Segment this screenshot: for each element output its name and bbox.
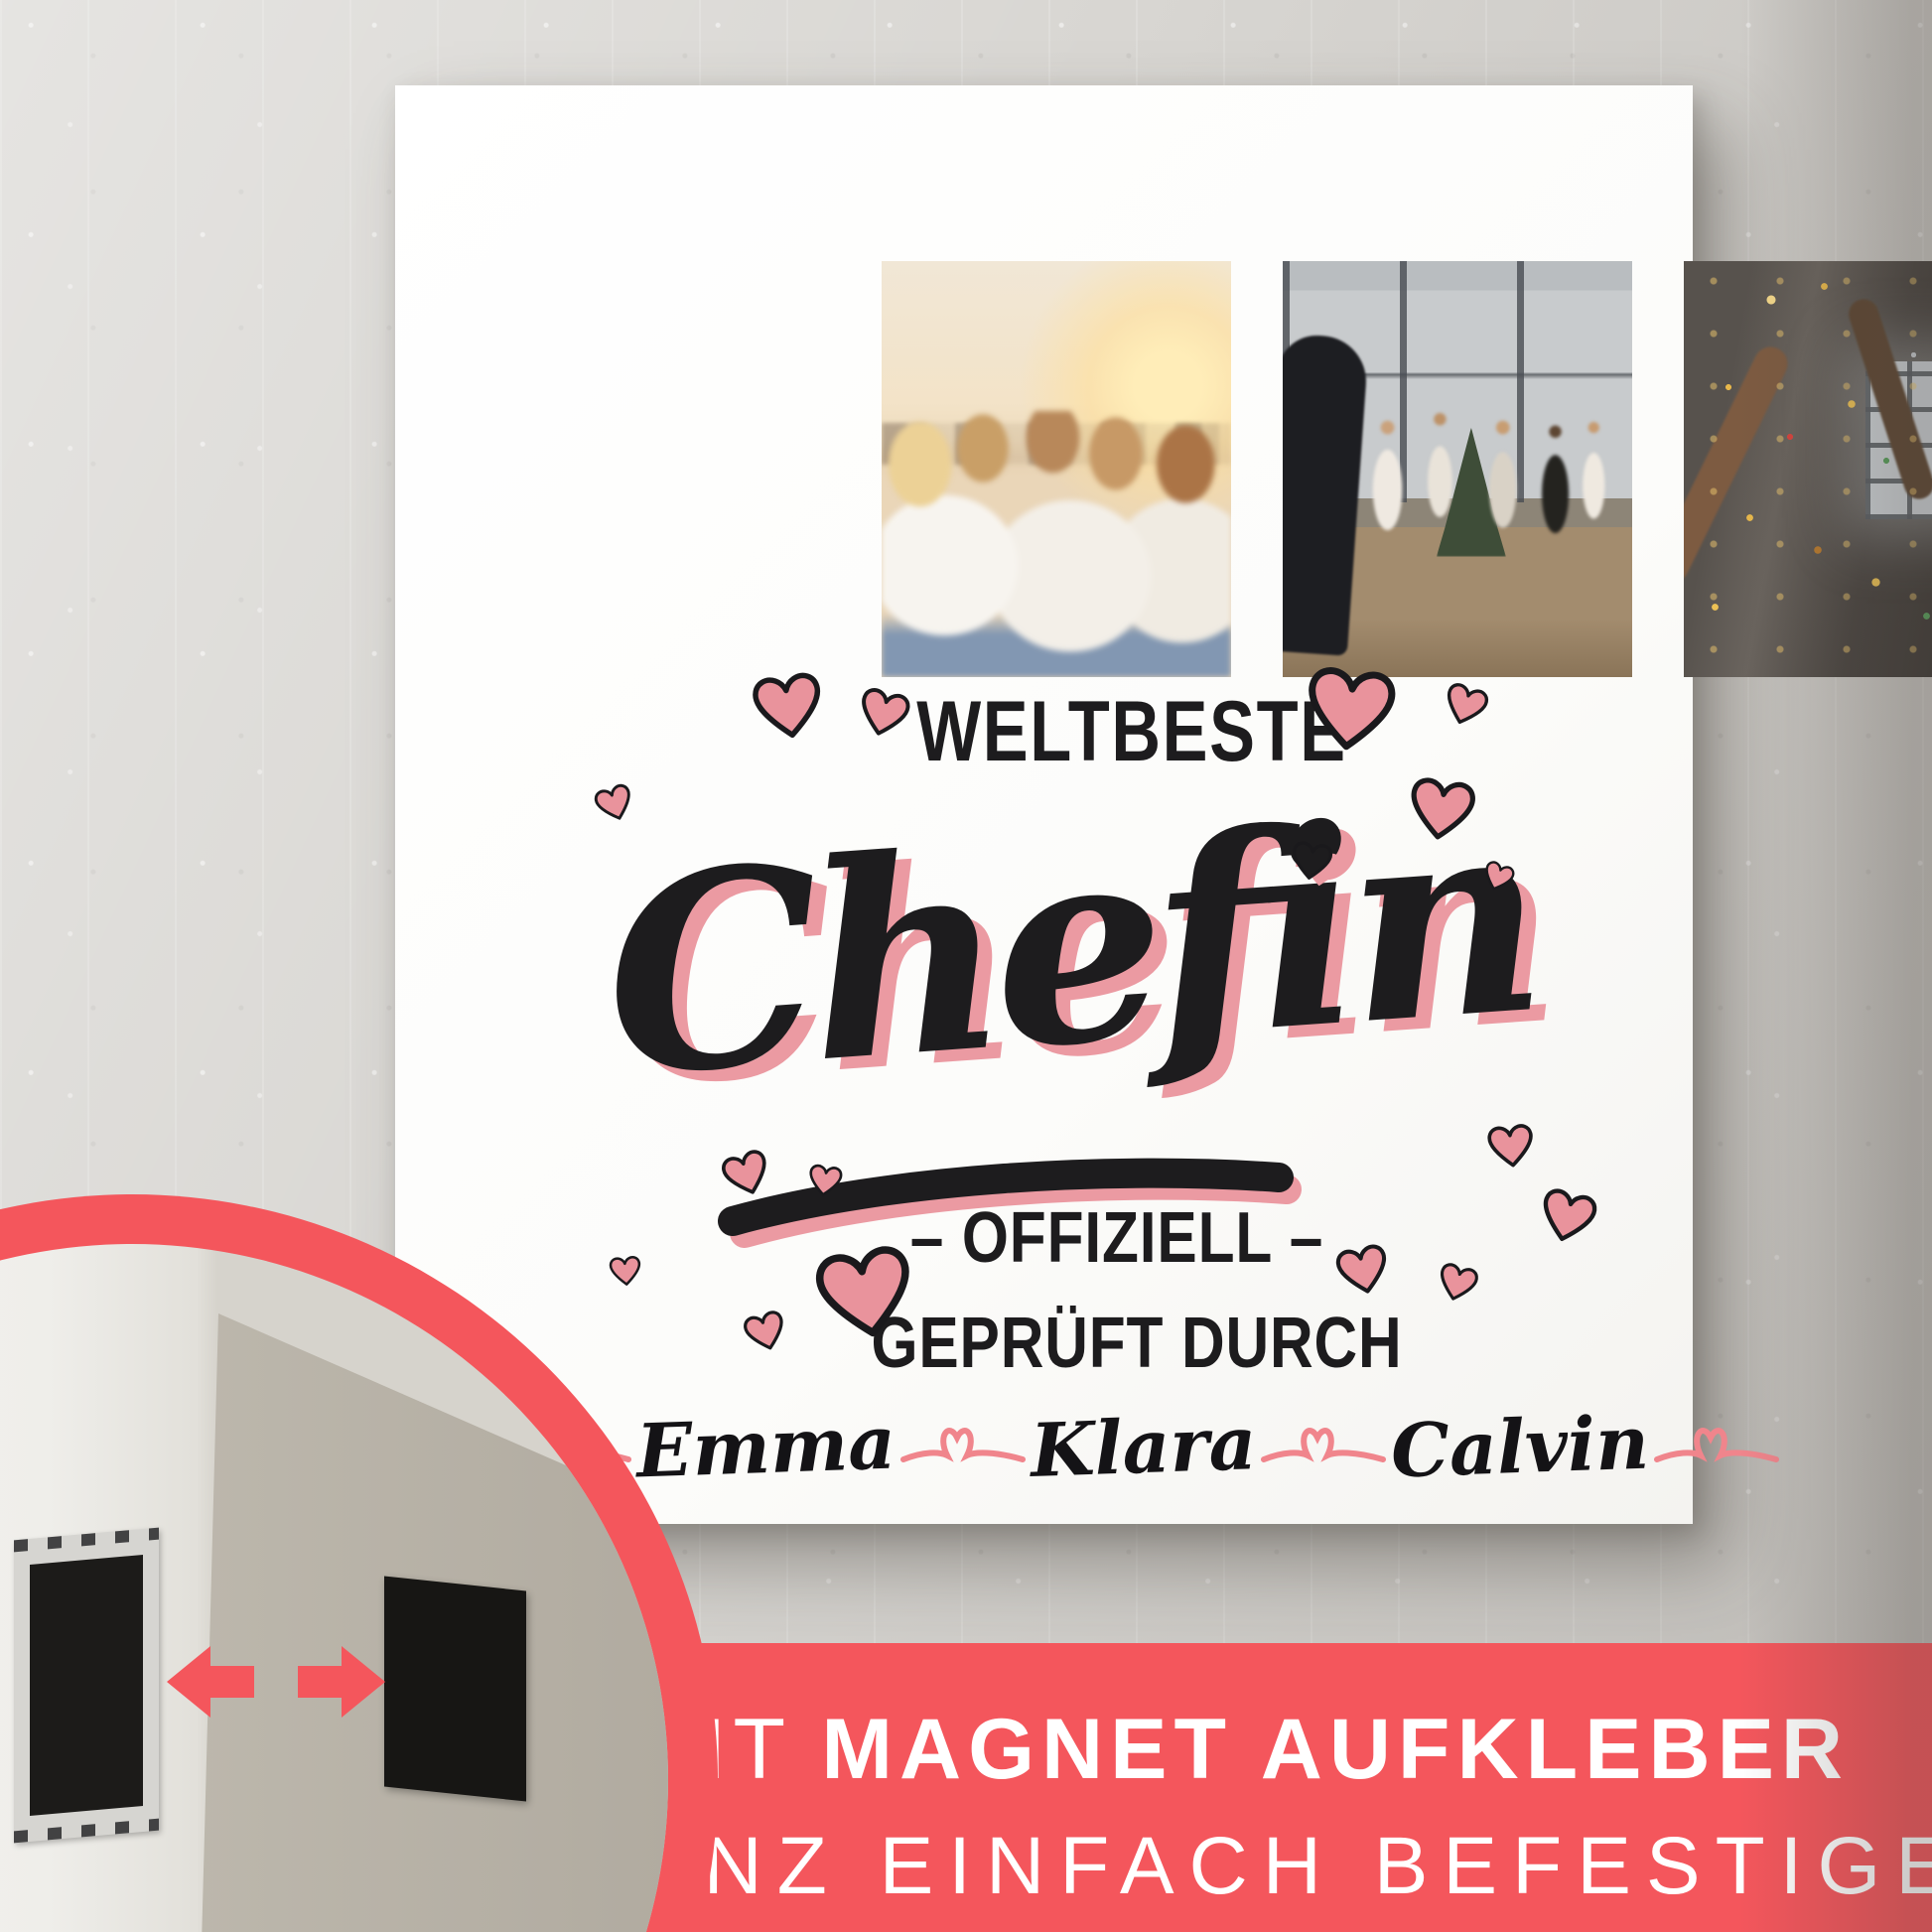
- names-row: Emma Klara Calvin: [602, 1388, 1684, 1507]
- magnet-black-core: [30, 1555, 143, 1816]
- heart-icon: [1482, 1117, 1539, 1173]
- raised-arm-shape: [1684, 342, 1793, 589]
- arrow-right-icon: [298, 1640, 385, 1724]
- heart-swash-icon: [899, 1416, 1027, 1479]
- figure-silhouette: [1283, 334, 1369, 656]
- subline-offiziell: – OFFIZIELL –: [859, 1197, 1376, 1279]
- banner-line1-bold: MAGNET AUFKLEBER: [821, 1702, 1850, 1797]
- title-chefin-script: Chefin: [597, 774, 1528, 1121]
- christmas-tree-shape: [1437, 428, 1506, 557]
- product-photo: WELTBESTE Chefin – OFFIZIELL – GEPRÜFT D…: [0, 0, 1932, 1932]
- raised-arm-shape: [1845, 295, 1932, 502]
- banner-line-2: GANZ EINFACH BEFESTIGEN: [556, 1820, 1926, 1913]
- magnet-sticker-with-frame: [14, 1528, 159, 1844]
- photo-friends-sunset-hug: [882, 261, 1231, 677]
- photo-confetti-celebration: [1684, 261, 1932, 677]
- name-3: Calvin: [1390, 1400, 1651, 1494]
- heart-swash-icon: [1260, 1416, 1387, 1479]
- heart-icon: [1329, 1236, 1398, 1305]
- heart-icon: [606, 1251, 644, 1290]
- magnet-sticker: [384, 1576, 526, 1801]
- photo-office-party: [1283, 261, 1632, 677]
- heart-swash-icon: [1653, 1416, 1780, 1479]
- banner-line-1: MIT MAGNET AUFKLEBER: [556, 1701, 1918, 1799]
- headline-weltbeste: WELTBESTE: [909, 683, 1354, 781]
- arrow-left-icon: [167, 1640, 254, 1724]
- heart-icon: [1296, 654, 1405, 763]
- heart-icon: [1286, 835, 1337, 887]
- heart-icon: [1400, 767, 1483, 851]
- heart-icon: [803, 1230, 927, 1354]
- subline-geprueft-durch: GEPRÜFT DURCH: [862, 1303, 1412, 1384]
- name-2: Klara: [1029, 1401, 1257, 1494]
- name-1: Emma: [635, 1400, 897, 1494]
- heart-icon: [804, 1160, 847, 1202]
- heart-icon: [745, 662, 832, 750]
